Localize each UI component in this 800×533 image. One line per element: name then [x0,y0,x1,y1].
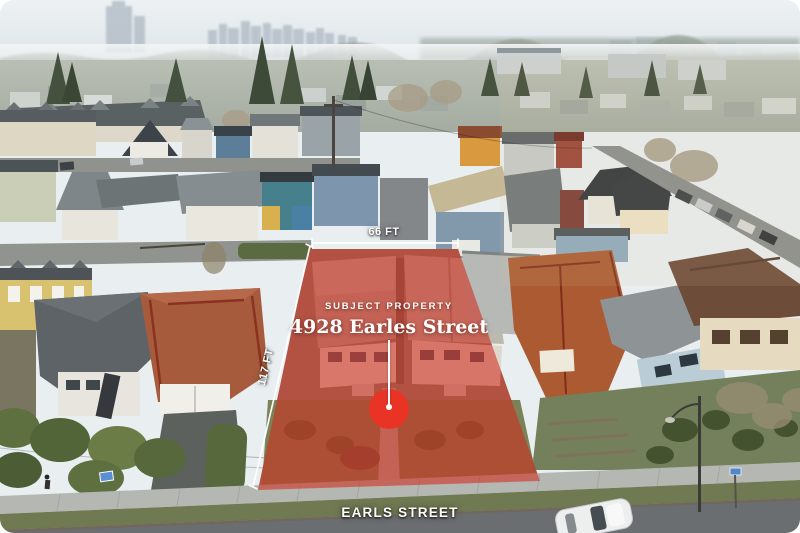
subject-property-eyebrow: SUBJECT PROPERTY [239,301,539,313]
marker-anchor-dot [386,404,392,410]
marker-leader-line [388,340,390,406]
frontage-dimension-label: 66 FT [344,226,424,238]
subject-property-address: 4928 Earles Street [239,315,539,339]
street-name-label: EARLS STREET [310,505,490,520]
aerial-property-photo: 66 FT 117 FT SUBJECT PROPERTY 4928 Earle… [0,0,800,533]
subject-property-label: SUBJECT PROPERTY 4928 Earles Street [239,301,539,339]
annotation-overlay [0,0,800,533]
